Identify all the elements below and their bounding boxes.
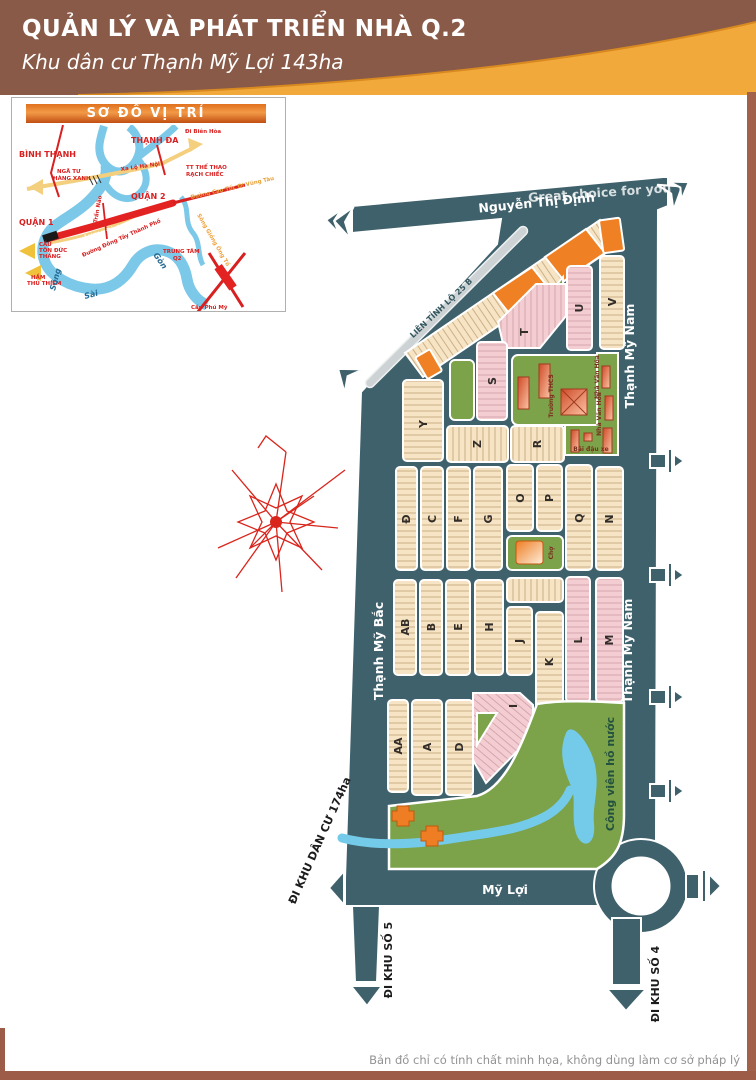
block-label-AA: AA bbox=[392, 737, 405, 755]
block-label-F: F bbox=[452, 515, 465, 523]
block-label-S: S bbox=[486, 377, 499, 385]
block-label-AB: AB bbox=[399, 619, 412, 636]
label-thanh-da: THẠNH ĐA bbox=[131, 136, 179, 145]
label-nga-tu-1: NGÃ TƯ bbox=[57, 168, 81, 175]
road-khu-so-5 bbox=[352, 906, 380, 982]
block-label-R: R bbox=[531, 439, 544, 448]
disclaimer-text: Bản đồ chỉ có tính chất minh họa, không … bbox=[369, 1053, 740, 1067]
exit-label-khu5: ĐI KHU SỐ 5 bbox=[380, 922, 395, 998]
block-label-M: M bbox=[603, 635, 616, 646]
page-subtitle: Khu dân cư Thạnh Mỹ Lợi 143ha bbox=[22, 50, 344, 74]
block-label-A: A bbox=[421, 742, 434, 751]
orange-lot-3 bbox=[599, 218, 624, 254]
road-label-thanh-my-bac: Thạnh Mỹ Bắc bbox=[371, 602, 386, 700]
block-label-G: G bbox=[482, 514, 495, 523]
arrow-east-icon bbox=[709, 874, 721, 898]
road-label-thanh-my-nam-2: Thạnh Mỹ Nam bbox=[620, 599, 635, 704]
label-cau-phu-my: Cầu Phú Mỹ bbox=[191, 303, 228, 311]
location-inset-map: SƠ ĐỒ VỊ TRÍ bbox=[11, 97, 286, 312]
block-label-Z: Z bbox=[471, 440, 484, 448]
label-cao-toc: Đường Cao Tốc Đi Vũng Tàu bbox=[190, 175, 275, 201]
school-label: Trường THCS bbox=[548, 374, 555, 417]
road-khu-so-4 bbox=[612, 918, 641, 985]
label-binh-thanh: BÌNH THẠNH bbox=[19, 148, 76, 159]
label-trung-tam-1: TRUNG TÂM bbox=[163, 248, 200, 255]
block-label-D: D bbox=[453, 742, 466, 751]
market-label: Chợ bbox=[548, 546, 555, 560]
exit-label-khu4: ĐI KHU SỐ 4 bbox=[647, 945, 662, 1022]
parking-label: Bãi đậu xe bbox=[573, 446, 608, 453]
inset-map-canvas: BÌNH THẠNH THẠNH ĐA QUẬN 2 QUẬN 1 Đi Biê… bbox=[13, 125, 284, 311]
arrow-quan1-icon bbox=[19, 243, 35, 259]
block-label-V: V bbox=[606, 297, 619, 306]
block-label-Y: Y bbox=[417, 419, 430, 429]
label-di-bien-hoa: Đi Biên Hòa bbox=[185, 128, 221, 135]
block-label-J: J bbox=[513, 639, 526, 644]
block-label-L: L bbox=[572, 636, 585, 643]
culture-house-label-2: Nhà Văn Hóa bbox=[596, 392, 603, 436]
label-nga-tu-2: HÀNG XANH bbox=[53, 175, 91, 182]
arrow-west-ntd-icon bbox=[324, 204, 353, 239]
label-tt-2: RẠCH CHIẾC bbox=[186, 170, 224, 178]
park-label: Công viên hồ nước bbox=[604, 717, 617, 831]
block-label-N: N bbox=[603, 514, 616, 523]
arrow-west-myloi-icon bbox=[329, 871, 344, 905]
block-label-Q: Q bbox=[573, 513, 586, 522]
road-label-thanh-my-nam-1: Thạnh Mỹ Nam bbox=[622, 304, 637, 409]
block-label-I: I bbox=[507, 704, 520, 708]
label-cau-tdt-2: TÔN ĐỨC bbox=[39, 247, 67, 254]
block-label-DD: Đ bbox=[400, 514, 413, 523]
inset-title: SƠ ĐỒ VỊ TRÍ bbox=[26, 104, 266, 123]
page-title: QUẢN LÝ VÀ PHÁT TRIỂN NHÀ Q.2 bbox=[22, 16, 467, 42]
block-label-P: P bbox=[543, 494, 556, 502]
block-label-H: H bbox=[483, 622, 496, 631]
label-tt-1: TT THỂ THAO bbox=[186, 163, 227, 171]
block-label-K: K bbox=[543, 657, 556, 666]
block-unlabeled bbox=[507, 578, 563, 602]
arrow-south-khu5-icon bbox=[351, 986, 382, 1006]
block-label-C: C bbox=[426, 515, 439, 523]
road-east-branch bbox=[686, 874, 699, 899]
school-block bbox=[512, 355, 602, 425]
arrow-sw-ltl-icon bbox=[329, 357, 363, 393]
block-label-U: U bbox=[573, 304, 586, 313]
block-label-B: B bbox=[425, 623, 438, 631]
compass-rose-icon bbox=[218, 436, 345, 592]
label-quan-1: QUẬN 1 bbox=[19, 217, 54, 227]
green-lot-small bbox=[450, 360, 474, 420]
road-label-my-loi: Mỹ Lợi bbox=[482, 882, 528, 897]
block-label-O: O bbox=[514, 493, 527, 502]
label-cau-tdt-3: THẮNG bbox=[39, 252, 61, 260]
label-trung-tam-2: Q2 bbox=[173, 256, 182, 262]
arrow-south-khu4-icon bbox=[607, 989, 646, 1011]
label-quan-2: QUẬN 2 bbox=[131, 191, 166, 201]
block-label-T: T bbox=[518, 328, 531, 336]
block-label-E: E bbox=[452, 623, 465, 631]
